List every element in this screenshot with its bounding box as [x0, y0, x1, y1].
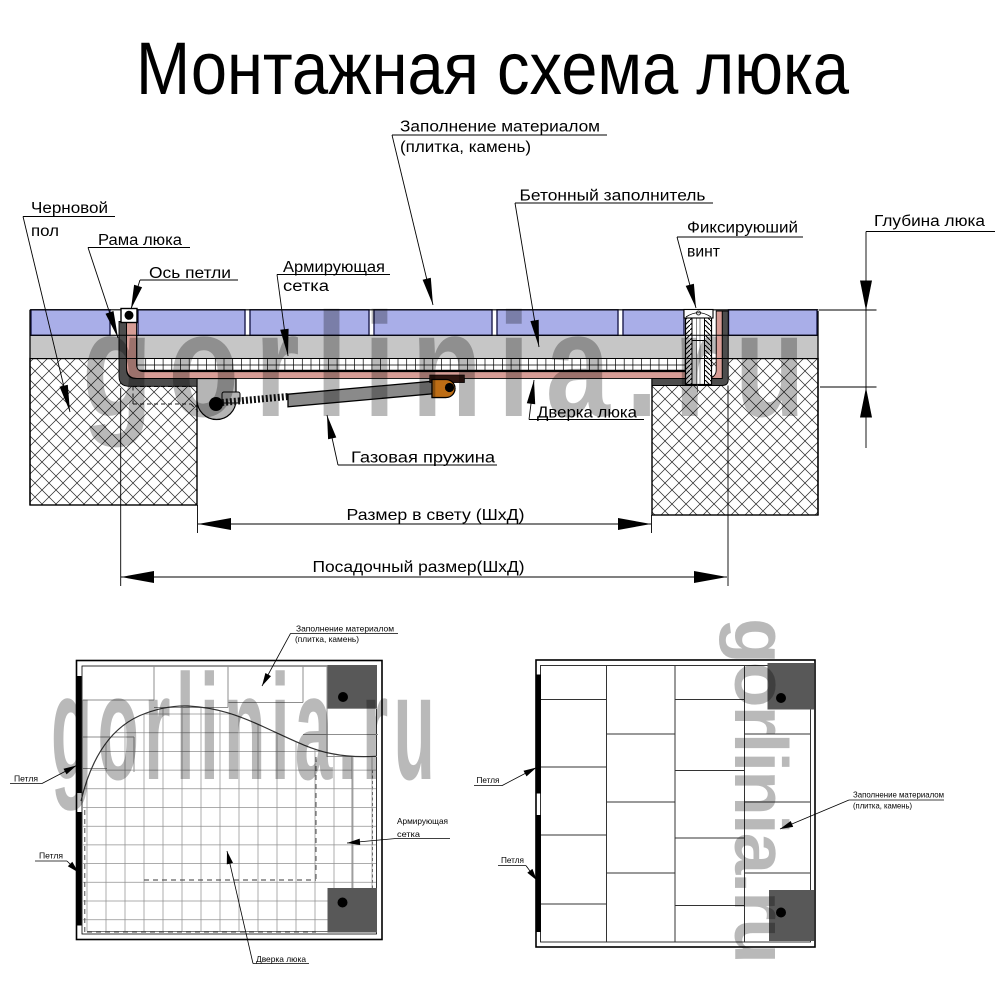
svg-text:Армирующая: Армирующая: [397, 817, 448, 826]
svg-text:gorlinia.ru: gorlinia.ru: [82, 283, 805, 448]
svg-text:gorlinia.ru: gorlinia.ru: [51, 644, 435, 812]
svg-text:Монтажная схема люка: Монтажная схема люка: [136, 27, 850, 110]
svg-text:(плитка, камень): (плитка, камень): [295, 635, 359, 644]
svg-text:Дверка люка: Дверка люка: [537, 405, 637, 422]
svg-text:Рама люка: Рама люка: [98, 232, 182, 249]
svg-text:(плитка, камень): (плитка, камень): [853, 802, 912, 811]
svg-text:винт: винт: [687, 244, 720, 261]
svg-text:Дверка люка: Дверка люка: [256, 955, 306, 964]
svg-text:Размер в свету (ШхД): Размер в свету (ШхД): [347, 507, 525, 524]
svg-text:Газовая пружина: Газовая пружина: [351, 450, 495, 467]
svg-text:(плитка, камень): (плитка, камень): [400, 139, 531, 156]
svg-text:Ось петли: Ось петли: [149, 265, 231, 282]
svg-text:Заполнение материалом: Заполнение материалом: [853, 791, 944, 800]
svg-text:Заполнение материалом: Заполнение материалом: [400, 119, 600, 136]
svg-text:Фиксируюший: Фиксируюший: [687, 220, 798, 237]
svg-text:Черновой: Черновой: [31, 200, 108, 217]
svg-text:Заполнение материалом: Заполнение материалом: [296, 625, 394, 634]
svg-text:Петля: Петля: [14, 775, 38, 784]
svg-text:Посадочный размер(ШхД): Посадочный размер(ШхД): [313, 559, 525, 576]
svg-text:сетка: сетка: [397, 830, 420, 839]
svg-text:пол: пол: [31, 223, 59, 240]
svg-text:Петля: Петля: [501, 856, 524, 865]
svg-text:Бетонный заполнитель: Бетонный заполнитель: [520, 188, 706, 205]
svg-text:Армирующая: Армирующая: [283, 259, 385, 276]
svg-text:Глубина люка: Глубина люка: [874, 213, 985, 230]
svg-text:Петля: Петля: [39, 852, 63, 861]
svg-text:Петля: Петля: [477, 776, 500, 785]
svg-text:gorlinia.ru: gorlinia.ru: [719, 618, 803, 964]
svg-text:сетка: сетка: [283, 278, 329, 295]
